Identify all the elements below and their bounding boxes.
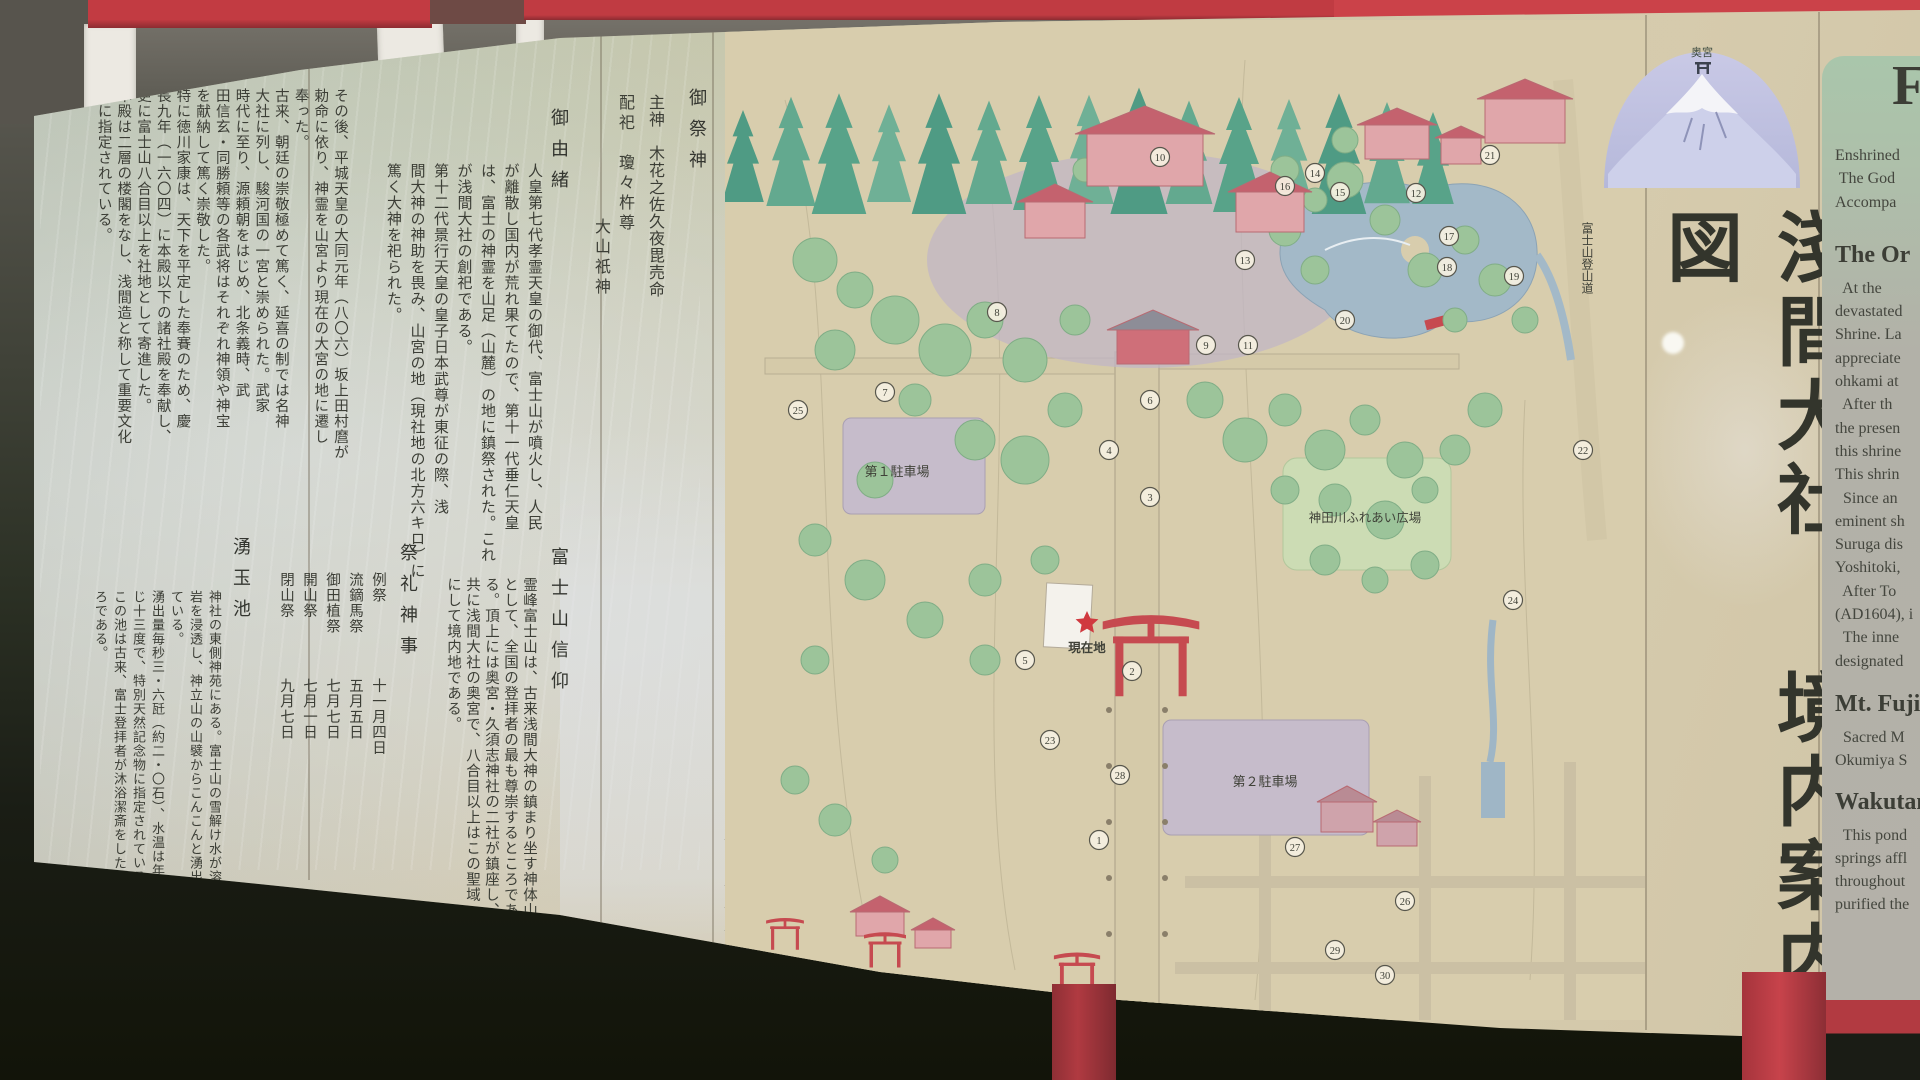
english-origin-line-16: The inne xyxy=(1822,626,1920,649)
english-wakutama-lines: This pondsprings afflthroughoutpurified … xyxy=(1822,824,1920,917)
history2-column-3: 奉った。 xyxy=(291,88,312,150)
wakutama-column-4: 湧出量毎秒三・六瓩（約二・〇石）、水温は年間を通 xyxy=(148,590,167,920)
english-origin-line-17: designated xyxy=(1822,650,1920,673)
wakutama-column-1: 神社の東側神苑にある。富士山の雪解け水が溶 xyxy=(205,590,224,884)
history-column-1: 人皇第七代孝霊天皇の御代、富士山が噴火し、人民 xyxy=(524,163,545,531)
deities-heading: 御祭神 xyxy=(684,88,710,181)
red-frame-top-beam-shadow xyxy=(430,0,526,24)
history2-column-5: 大社に列し、駿河国の一宮と崇められた。武家 xyxy=(251,88,272,414)
marker-number-4: 4 xyxy=(1106,446,1112,457)
marker-number-2: 2 xyxy=(1129,667,1134,678)
english-origin-line-3: Shrine. La xyxy=(1822,323,1920,346)
history-column-2: が離散し国内が荒れ果てたので、第十一代垂仁天皇 xyxy=(501,163,522,531)
english-origin-line-11: eminent sh xyxy=(1822,510,1920,533)
marker-number-14: 14 xyxy=(1310,169,1321,180)
history2-column-12: 本殿は二層の楼閣をなし、浅間造と称して重要文化 xyxy=(113,88,134,445)
english-origin-line-9: This shrin xyxy=(1822,463,1920,486)
marker-number-30: 30 xyxy=(1380,971,1391,982)
wakutama-column-5: じ十三度で、特別天然記念物に指定されている。 xyxy=(129,590,148,898)
guide-board: 御祭神 主神 木花之佐久夜毘売命 配祀 瓊々杵尊 大山祇神 御由緒 人皇第七代孝… xyxy=(0,0,1920,1080)
english-wakutama-line-4: purified the xyxy=(1822,893,1920,916)
history2-column-6: 時代に至り、源頼朝をはじめ、北条義時、武 xyxy=(232,88,253,398)
deity-main: 主神 木花之佐久夜毘売命 xyxy=(642,94,666,298)
marker-number-10: 10 xyxy=(1155,153,1166,164)
okumiya-label: 奥宮 xyxy=(1691,45,1713,59)
festival-date-3: 七月七日 xyxy=(322,678,343,740)
deity-haishi: 配祀 瓊々杵尊 xyxy=(612,94,636,234)
panel-seam xyxy=(712,32,714,977)
marker-number-13: 13 xyxy=(1240,256,1251,267)
red-frame-post xyxy=(1052,984,1116,1080)
marker-number-24: 24 xyxy=(1508,596,1519,607)
english-intro-lines: Enshrined The GodAccompa xyxy=(1822,144,1920,214)
english-origin-lines: At thedevastatedShrine. Laappreciateohka… xyxy=(1822,277,1920,673)
stream-cascade xyxy=(1481,762,1505,818)
marker-number-25: 25 xyxy=(793,406,804,417)
fuji-worship-column-4: 共に浅間大社の奥宮で、八合目以上はこの聖域 xyxy=(462,577,483,903)
history-column-3: は、富士の神霊を山足（山麓）の地に鎮祭された。これ xyxy=(477,163,498,563)
english-intro-line-2: The God xyxy=(1822,167,1920,190)
festival-name-2: 流鏑馬祭 xyxy=(345,572,366,634)
english-fuji-line-2: Okumiya S xyxy=(1822,749,1920,772)
marker-number-6: 6 xyxy=(1147,396,1152,407)
marker-number-15: 15 xyxy=(1335,188,1346,199)
map-label-plaza: 神田川ふれあい広場 xyxy=(1309,511,1422,525)
festival-name-5: 閉山祭 xyxy=(276,572,297,619)
marker-number-12: 12 xyxy=(1411,189,1422,200)
fuji-worship-column-5: にして境内地である。 xyxy=(443,577,464,732)
marker-number-5: 5 xyxy=(1022,656,1027,667)
english-origin-line-4: appreciate xyxy=(1822,347,1920,370)
english-origin-line-2: devastated xyxy=(1822,300,1920,323)
english-origin-line-7: the presen xyxy=(1822,417,1920,440)
panel-seam xyxy=(600,36,602,926)
wakutama-column-2: 岩を浸透し、神立山の山襞からこんこんと湧出し xyxy=(186,590,205,898)
history2-column-13: 財に指定されている。 xyxy=(94,88,115,243)
marker-number-17: 17 xyxy=(1444,232,1455,243)
photo-dark-corner xyxy=(0,0,92,124)
festival-date-1: 十一月四日 xyxy=(368,678,389,756)
history-column-5: 第十二代景行天皇の皇子日本武尊が東征の際、浅 xyxy=(430,163,451,515)
grounds-map-illustration: 第１駐車場 神田川ふれあい広場 第２駐車場 現在地 富士山登山道 1012161… xyxy=(725,20,1645,1020)
map-label-parking2: 第２駐車場 xyxy=(1232,774,1297,789)
english-origin-line-1: At the xyxy=(1822,277,1920,300)
marker-number-26: 26 xyxy=(1400,897,1411,908)
fuji-worship-heading: 富士山信仰 xyxy=(546,547,572,702)
english-wakutama-line-2: springs affl xyxy=(1822,847,1920,870)
red-frame-top-beam xyxy=(524,0,1336,20)
history2-column-10: 長九年（一六〇四）に本殿以下の諸社殿を奉献し、 xyxy=(153,88,174,445)
english-fuji-heading: Mt. Fuji xyxy=(1822,691,1920,718)
red-frame-top-beam xyxy=(88,0,432,28)
marker-number-7: 7 xyxy=(882,388,887,399)
marker-number-22: 22 xyxy=(1578,446,1589,457)
english-wakutama-line-3: throughout xyxy=(1822,870,1920,893)
marker-number-21: 21 xyxy=(1485,151,1496,162)
mount-fuji-illustration: 奥宮 xyxy=(1596,38,1808,194)
english-origin-line-6: After th xyxy=(1822,393,1920,416)
festival-date-5: 九月七日 xyxy=(276,678,297,740)
map-label-parking1: 第１駐車場 xyxy=(864,464,929,479)
photo-of-shrine-guide-board: 御祭神 主神 木花之佐久夜毘売命 配祀 瓊々杵尊 大山祇神 御由緒 人皇第七代孝… xyxy=(0,0,1920,1080)
map-label-current-location: 現在地 xyxy=(1068,640,1106,655)
english-origin-line-12: Suruga dis xyxy=(1822,533,1920,556)
glare-patch xyxy=(560,430,730,990)
wakutama-column-6: この池は古来、富士登拝者が沐浴潔斎をしたとこ xyxy=(110,590,129,898)
red-frame-post xyxy=(1742,972,1826,1080)
festival-date-2: 五月五日 xyxy=(345,678,366,740)
history2-column-8: を献納して篤く崇敬した。 xyxy=(192,88,213,274)
wakutama-column-7: ろである。 xyxy=(91,590,110,660)
history2-column-7: 田信玄・同勝頼等の各武将はそれぞれ神領や神宝 xyxy=(212,88,233,429)
map-label-fuji-trail: 富士山登山道 xyxy=(1580,221,1594,294)
english-title-fragment: F xyxy=(1822,56,1920,116)
marker-number-23: 23 xyxy=(1045,736,1056,747)
english-intro-line-3: Accompa xyxy=(1822,191,1920,214)
deity-haishi2: 大山祇神 xyxy=(588,218,612,298)
history2-column-2: 勅命に依り、神霊を山宮より現在の大宮の地に遷し xyxy=(310,88,331,445)
history-heading: 御由緒 xyxy=(546,108,572,201)
history-column-6: 間大神の神助を畏み、山宮の地（現社地の北方六キロ）に xyxy=(407,163,428,579)
english-text-panel: F Enshrined The GodAccompa The Or At the… xyxy=(1822,56,1920,1038)
marker-number-19: 19 xyxy=(1509,272,1520,283)
marker-number-29: 29 xyxy=(1330,946,1341,957)
marker-number-20: 20 xyxy=(1340,316,1351,327)
festivals-heading: 祭礼神事 xyxy=(395,543,421,667)
festival-name-4: 開山祭 xyxy=(299,572,320,619)
marker-number-28: 28 xyxy=(1115,771,1126,782)
marker-number-8: 8 xyxy=(994,308,999,319)
red-frame-corner xyxy=(1826,1000,1920,1080)
english-wakutama-heading: Wakutam xyxy=(1822,789,1920,816)
festival-name-1: 例祭 xyxy=(368,572,389,603)
english-origin-heading: The Or xyxy=(1822,242,1920,269)
english-fuji-lines: Sacred MOkumiya S xyxy=(1822,726,1920,773)
history2-column-4: 古来、朝廷の崇敬極めて篤く、延喜の制では名神 xyxy=(271,88,292,429)
festival-name-3: 御田植祭 xyxy=(322,572,343,634)
wakutama-heading: 湧玉池 xyxy=(228,537,254,630)
fuji-worship-column-1: 霊峰富士山は、古来浅間大神の鎮まり坐す神体山 xyxy=(519,577,540,918)
english-origin-line-10: Since an xyxy=(1822,487,1920,510)
marker-number-11: 11 xyxy=(1243,341,1253,352)
marker-number-18: 18 xyxy=(1442,263,1453,274)
english-origin-line-8: this shrine xyxy=(1822,440,1920,463)
english-origin-line-5: ohkami at xyxy=(1822,370,1920,393)
history2-column-9: 特に徳川家康は、天下を平定した奉賽のため、慶 xyxy=(172,88,193,429)
english-origin-line-15: (AD1604), i xyxy=(1822,603,1920,626)
marker-number-3: 3 xyxy=(1147,493,1152,504)
history2-column-1: その後、平城天皇の大同元年（八〇六）坂上田村麿が xyxy=(330,88,351,460)
english-intro-line-1: Enshrined xyxy=(1822,144,1920,167)
english-fuji-line-1: Sacred M xyxy=(1822,726,1920,749)
marker-number-9: 9 xyxy=(1203,341,1208,352)
fuji-worship-column-3: る。頂上には奥宮・久須志神社の二社が鎮座し、 xyxy=(481,577,502,918)
history-column-4: が浅間大社の創祀である。 xyxy=(454,163,475,355)
marker-number-16: 16 xyxy=(1280,182,1291,193)
marker-number-1: 1 xyxy=(1096,836,1101,847)
marker-number-27: 27 xyxy=(1290,843,1301,854)
fuji-worship-column-2: として、全国の登拝者の最も尊崇するところであ xyxy=(500,577,521,918)
english-origin-line-14: After To xyxy=(1822,580,1920,603)
english-wakutama-line-1: This pond xyxy=(1822,824,1920,847)
history2-column-11: 更に富士山八合目以上を社地として寄進した。 xyxy=(133,88,154,414)
wakutama-column-3: ている。 xyxy=(167,590,186,646)
festival-date-4: 七月一日 xyxy=(299,678,320,740)
english-origin-line-13: Yoshitoki, xyxy=(1822,556,1920,579)
history-column-7: 篤く大神を祀られた。 xyxy=(383,163,404,323)
